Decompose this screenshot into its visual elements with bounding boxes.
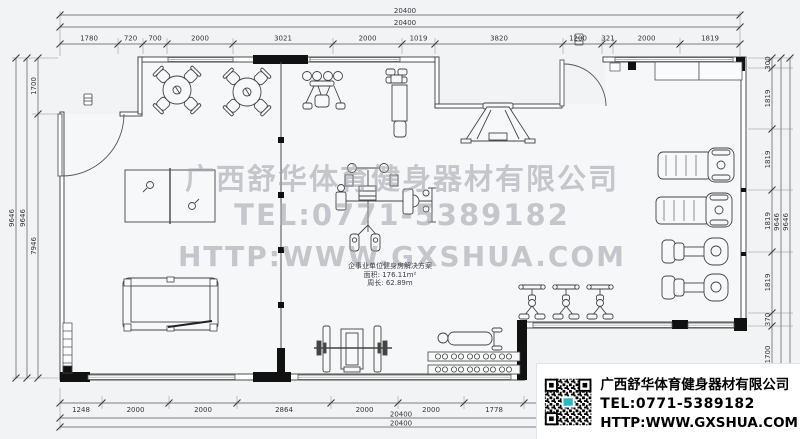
room-label-title: 企事业单位健身房解决方案	[348, 262, 432, 271]
dim-top: 2000	[359, 35, 377, 43]
dim-top: 1819	[701, 35, 719, 43]
dim-right: 1819	[764, 151, 772, 169]
dim-top: 2000	[638, 35, 656, 43]
dim-right-overall: 9646	[773, 213, 781, 231]
company-info-box: 广西舒华体育健身器材有限公司 TEL:0771-5389182 HTTP:WWW…	[537, 364, 800, 439]
dim-top-overall-1: 20400	[394, 7, 416, 15]
dim-top-overall-2: 20400	[394, 19, 416, 27]
dim-bottom-overall-1: 20400	[390, 411, 412, 419]
dim-right-overall: 9646	[782, 213, 790, 231]
room-label: 企事业单位健身房解决方案 面积: 176.11m² 周长: 62.89m	[348, 262, 432, 288]
company-website: HTTP:WWW.GXSHUA.COM	[600, 415, 798, 431]
dim-top: 3820	[490, 35, 508, 43]
dim-left: 1700	[30, 77, 38, 95]
dim-bottom: 2000	[356, 406, 374, 414]
dim-top: 1200	[569, 35, 587, 43]
floor-plan-sheet: 20400 20400 1780 720 700 2000 3021 2000 …	[0, 0, 800, 439]
dim-bottom-overall-2: 20400	[390, 420, 412, 428]
dim-bottom: 2864	[275, 406, 293, 414]
storage-cabinet	[655, 62, 742, 80]
dim-top: 1780	[80, 35, 98, 43]
treadmill	[658, 148, 734, 182]
dim-top: 1019	[410, 35, 428, 43]
dim-bottom: 1248	[72, 406, 90, 414]
room-label-perimeter: 周长: 62.89m	[348, 279, 432, 288]
dim-left: 7946	[30, 237, 38, 255]
dim-right: 1819	[764, 274, 772, 292]
dim-right: 370	[764, 313, 772, 326]
dim-left-overall: 9646	[8, 209, 16, 227]
dim-top: 321	[601, 35, 614, 43]
dim-top: 700	[148, 35, 161, 43]
dim-right: 300	[764, 56, 772, 69]
qr-code-icon	[543, 374, 593, 430]
bench-press	[314, 326, 392, 372]
dim-top: 720	[124, 35, 137, 43]
room-label-area: 面积: 176.11m²	[348, 271, 432, 280]
dim-bottom: 2000	[194, 406, 212, 414]
dim-right: 1819	[764, 90, 772, 108]
billiard-table	[123, 277, 218, 331]
water-dispenser-icon	[84, 94, 92, 105]
dim-right: 1700	[764, 346, 772, 364]
company-name: 广西舒华体育健身器材有限公司	[600, 373, 798, 393]
company-info-text: 广西舒华体育健身器材有限公司 TEL:0771-5389182 HTTP:WWW…	[600, 373, 798, 431]
dim-top: 3021	[274, 35, 292, 43]
wall-radiator	[63, 323, 72, 373]
dim-bottom: 1778	[485, 406, 503, 414]
dim-bottom: 2000	[127, 406, 145, 414]
table-tennis-table	[125, 168, 215, 224]
dim-left-overall: 9646	[19, 209, 27, 227]
dim-right: 1819	[764, 212, 772, 230]
dim-top: 2000	[191, 35, 209, 43]
company-phone: TEL:0771-5389182	[600, 396, 798, 412]
dim-bottom: 2000	[422, 406, 440, 414]
treadmill	[656, 193, 732, 227]
